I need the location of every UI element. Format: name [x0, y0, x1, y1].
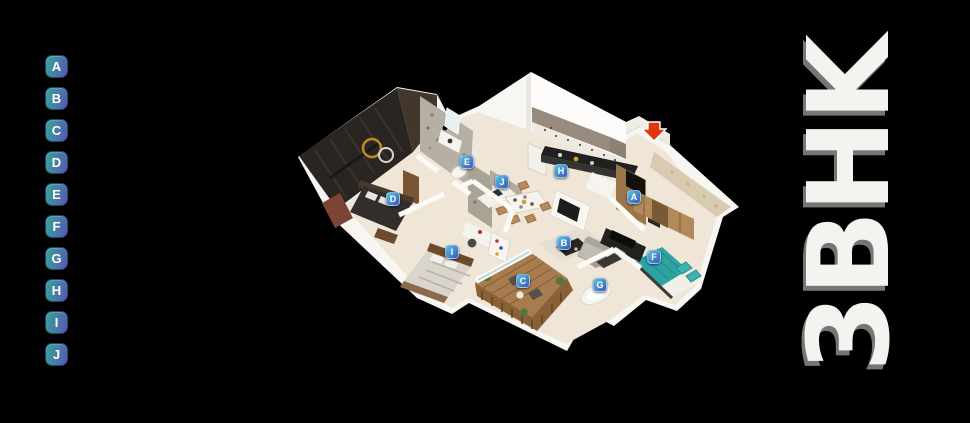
- plan-marker-j[interactable]: J: [495, 175, 509, 189]
- plan-marker-b[interactable]: B: [557, 236, 571, 250]
- plan-marker-a[interactable]: A: [627, 190, 641, 204]
- plan-marker-g[interactable]: G: [593, 278, 607, 292]
- plant: [520, 308, 527, 315]
- plan-marker-d[interactable]: D: [386, 192, 400, 206]
- plan-marker-c[interactable]: C: [516, 274, 530, 288]
- stage: ABCDEFGHIJ: [0, 0, 970, 423]
- plan-marker-i[interactable]: I: [445, 245, 459, 259]
- plan-marker-e[interactable]: E: [460, 155, 474, 169]
- plan-type-title: 3BHK: [790, 0, 910, 414]
- plan-marker-h[interactable]: H: [554, 164, 568, 178]
- plant: [556, 277, 564, 285]
- plan-marker-f[interactable]: F: [647, 250, 661, 264]
- desk-chair: [468, 239, 477, 248]
